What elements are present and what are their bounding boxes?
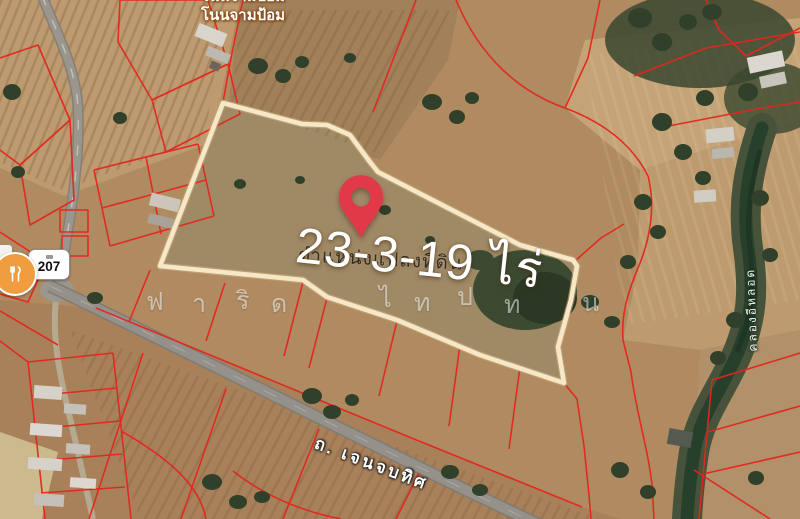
map-terrain-image [0, 0, 800, 519]
location-pin-icon[interactable] [334, 174, 388, 240]
satellite-map[interactable]: ฟ า ริ ด ไ ท ป ท น ตำแหน่งแปลงที่ดิน 23-… [0, 0, 800, 519]
restaurant-icon [6, 265, 24, 283]
route-number: 207 [38, 260, 61, 274]
